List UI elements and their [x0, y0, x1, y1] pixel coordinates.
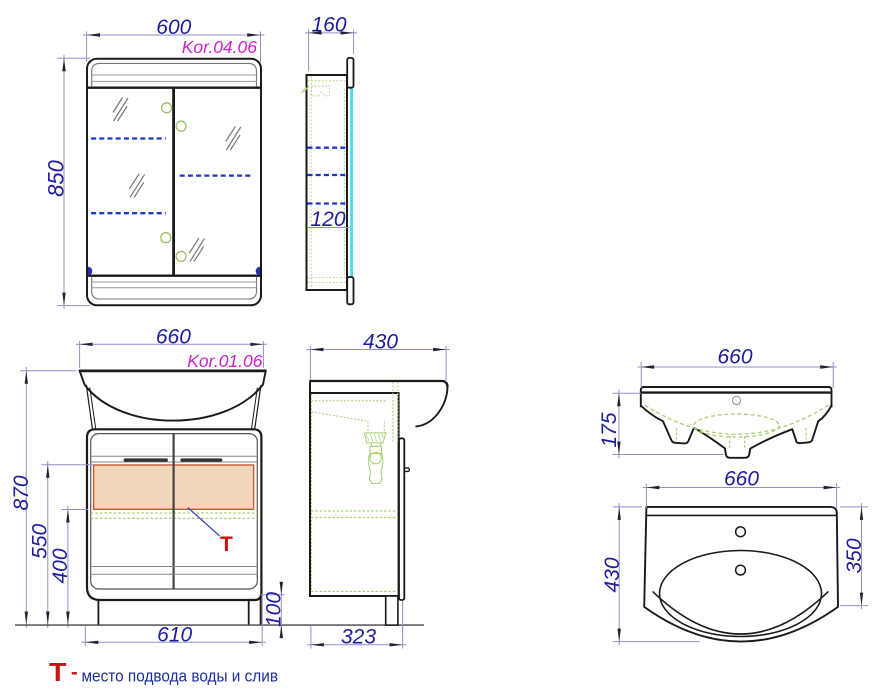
svg-text:место подвода воды и слив: место подвода воды и слив: [82, 666, 279, 685]
svg-text:T: T: [220, 533, 233, 556]
svg-text:160: 160: [311, 13, 346, 36]
svg-text:430: 430: [601, 557, 624, 592]
svg-text:-: -: [71, 662, 78, 684]
svg-text:660: 660: [724, 467, 759, 490]
svg-text:870: 870: [10, 475, 33, 510]
svg-text:350: 350: [843, 538, 866, 573]
svg-text:Kor.04.06: Kor.04.06: [182, 37, 258, 57]
svg-text:400: 400: [49, 548, 72, 583]
svg-text:660: 660: [717, 346, 752, 369]
svg-text:T: T: [49, 659, 67, 687]
svg-text:850: 850: [44, 159, 69, 196]
svg-text:100: 100: [262, 592, 285, 627]
svg-text:610: 610: [157, 623, 192, 646]
svg-text:600: 600: [156, 16, 191, 39]
svg-text:550: 550: [29, 523, 52, 558]
svg-text:175: 175: [598, 412, 621, 447]
svg-text:Kor.01.06: Kor.01.06: [187, 351, 263, 371]
svg-text:430: 430: [363, 330, 398, 353]
svg-text:660: 660: [156, 326, 191, 349]
svg-text:323: 323: [341, 626, 376, 649]
